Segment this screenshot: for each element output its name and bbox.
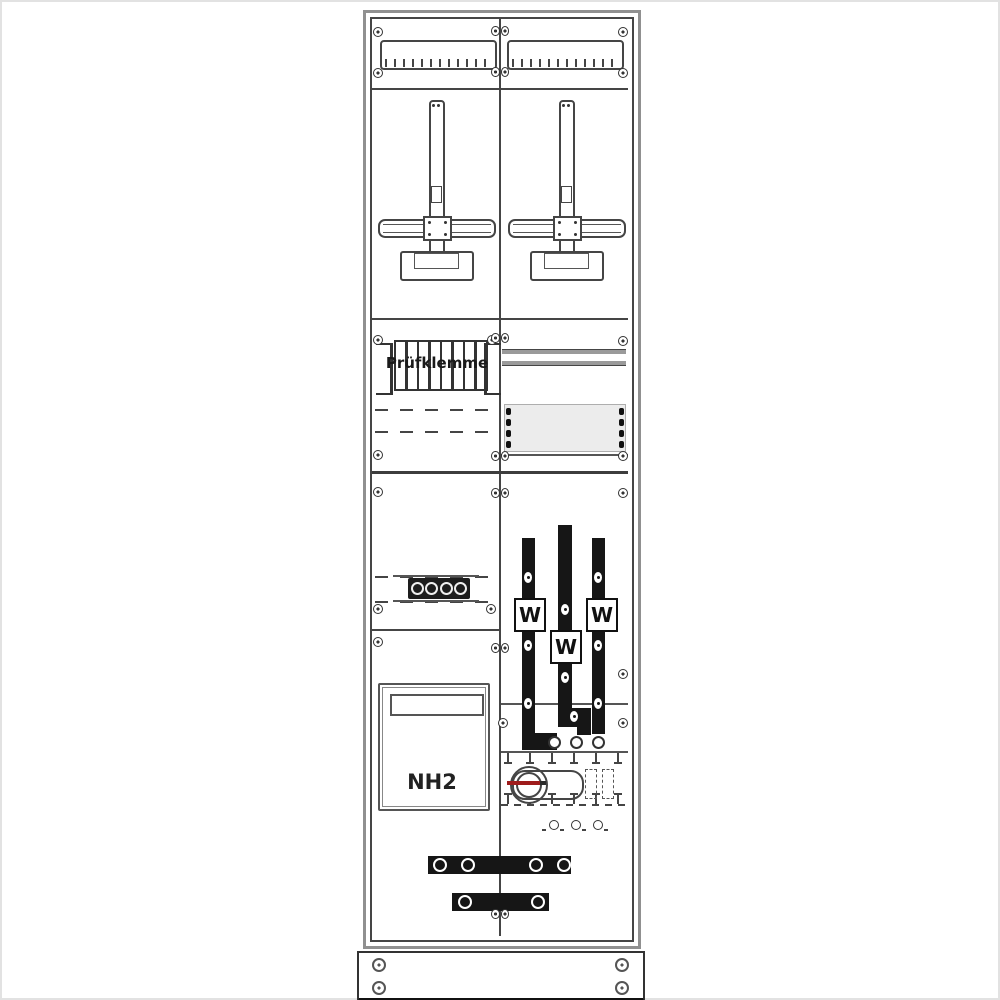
screw-icon — [618, 451, 628, 461]
screw-icon — [618, 336, 628, 346]
terminal-ring-icon — [440, 582, 453, 595]
nh-fuse-label: NH2 — [378, 770, 486, 794]
center-divider-line — [499, 19, 501, 936]
screw-icon — [491, 333, 509, 342]
rail-coupling-1 — [431, 186, 442, 203]
screw-icon — [491, 909, 509, 918]
screw-icon — [373, 604, 383, 614]
screw-icon — [491, 488, 509, 497]
block-rail — [393, 600, 479, 602]
rail-dot — [567, 104, 570, 107]
mount-tick — [526, 753, 534, 764]
top-terminal-strip-right — [507, 40, 624, 70]
switch-terminal — [548, 736, 561, 749]
screw-icon — [618, 27, 628, 37]
section-divider — [372, 318, 628, 320]
transformer-label: W — [519, 603, 541, 627]
screw-icon — [618, 488, 628, 498]
nh-fuse-window — [390, 694, 484, 716]
switch-indicator — [507, 781, 543, 785]
transformer-label: W — [591, 603, 613, 627]
section-divider-left — [372, 629, 500, 631]
screw-icon — [486, 604, 496, 614]
base-plinth — [357, 951, 645, 1000]
screw-icon — [491, 26, 509, 35]
wiring-diagram-canvas: Prüfklemme NH2 W W — [0, 0, 1000, 1000]
crossbar-plate-1 — [423, 216, 452, 241]
screw-icon — [491, 67, 509, 76]
busbar-hole — [524, 698, 532, 709]
section-line-right — [501, 751, 628, 753]
dashed-terminal-circle — [571, 820, 581, 830]
dashed-terminal-circle — [549, 820, 559, 830]
switch-handle — [512, 770, 584, 800]
dashed-mount-line — [501, 804, 628, 806]
rail-coupling-2 — [561, 186, 572, 203]
transformer-label: W — [555, 635, 577, 659]
busbar-hole — [570, 711, 578, 722]
screw-icon — [373, 487, 383, 497]
mount-tick — [570, 753, 578, 764]
screw-icon — [373, 450, 383, 460]
crossbar-plate-2 — [553, 216, 582, 241]
screw-icon — [372, 958, 386, 972]
screw-icon — [618, 68, 628, 78]
screw-icon — [615, 981, 629, 995]
rail-dot — [437, 104, 440, 107]
current-transformer-w2: W — [550, 630, 582, 664]
screw-icon — [373, 335, 383, 345]
busbar-hole — [594, 698, 602, 709]
meter-terminal-cover-window-2 — [544, 253, 589, 269]
busbar-hole — [561, 604, 569, 615]
screw-icon — [498, 718, 508, 728]
mount-tick — [504, 793, 512, 804]
dashed-mount-line — [375, 409, 497, 411]
aux-terminal-block — [408, 578, 470, 599]
switch-slot-dashed — [602, 769, 614, 799]
dashed-terminal-circle — [593, 820, 603, 830]
screw-icon — [373, 27, 383, 37]
dash-mark — [604, 829, 608, 831]
busbar-hole — [561, 672, 569, 683]
equipment-panel — [504, 404, 626, 452]
mount-tick — [504, 753, 512, 764]
busbar-hole — [524, 640, 532, 651]
terminal-ring-icon — [454, 582, 467, 595]
screw-icon — [491, 643, 509, 652]
switch-indicator-tip — [540, 781, 546, 785]
mount-tick — [592, 753, 600, 764]
din-rail — [502, 349, 626, 366]
mount-tick — [548, 753, 556, 764]
screw-icon — [373, 637, 383, 647]
mount-tick — [614, 793, 622, 804]
screw-icon — [373, 68, 383, 78]
terminal-ring-icon — [425, 582, 438, 595]
screw-icon — [491, 451, 509, 460]
section-divider — [372, 88, 628, 90]
mount-tick — [614, 753, 622, 764]
bottom-busbar-upper — [428, 856, 571, 874]
dash-mark — [560, 829, 564, 831]
busbar-hole — [594, 572, 602, 583]
dash-mark — [582, 829, 586, 831]
meter-terminal-cover-window-1 — [414, 253, 459, 269]
screw-icon — [618, 669, 628, 679]
busbar-hole — [524, 572, 532, 583]
dashed-mount-line — [375, 431, 497, 433]
current-transformer-w3: W — [586, 598, 618, 632]
busbar-l2-stub — [577, 727, 591, 735]
screw-icon — [618, 718, 628, 728]
switch-terminal — [592, 736, 605, 749]
switch-terminal — [570, 736, 583, 749]
busbar-hole — [594, 640, 602, 651]
block-rail — [393, 575, 479, 577]
terminal-ring-icon — [411, 582, 424, 595]
current-transformer-w1: W — [514, 598, 546, 632]
rail-dot — [432, 104, 435, 107]
screw-icon — [615, 958, 629, 972]
screw-icon — [372, 981, 386, 995]
top-terminal-strip-left — [380, 40, 497, 70]
test-terminal-label: Prüfklemme — [380, 354, 494, 372]
dash-mark — [542, 829, 546, 831]
rail-dot — [562, 104, 565, 107]
section-line-right — [501, 454, 628, 456]
section-divider — [372, 471, 628, 474]
switch-slot-dashed — [585, 769, 597, 799]
